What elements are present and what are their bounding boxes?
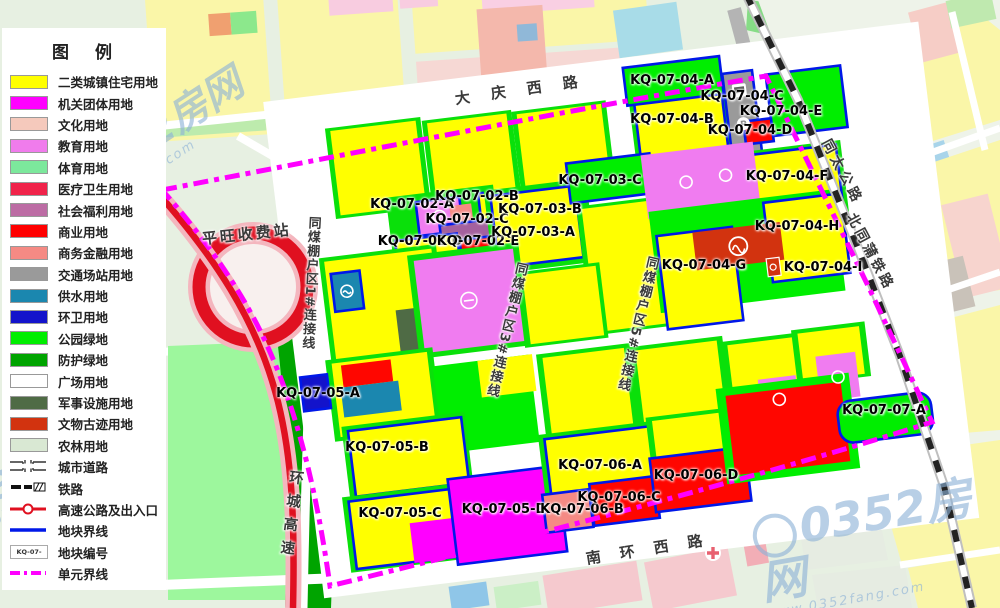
legend-item: 农林用地 [2,435,166,456]
road-icon [10,460,48,474]
legend-title: 图 例 [8,38,166,63]
legend-swatch [10,267,48,281]
legend-label: 体育用地 [58,158,108,177]
railway-icon [10,481,48,495]
legend-label: 医疗卫生用地 [58,179,133,198]
legend-swatch [10,224,48,238]
legend-swatch [10,396,48,410]
legend-swatch [10,246,48,260]
legend-swatch [10,438,48,452]
legend-label: 交通场站用地 [58,265,133,284]
legend-item: 城市道路 [2,456,166,477]
legend-item: 广场用地 [2,370,166,391]
legend-swatch [10,75,48,89]
legend-label: 高速公路及出入口 [58,500,158,519]
legend-label: 农林用地 [58,436,108,455]
legend-label: 供水用地 [58,286,108,305]
legend-label: 社会福利用地 [58,201,133,220]
legend-swatch [10,289,48,303]
legend-item: 医疗卫生用地 [2,178,166,199]
legend-swatch [10,117,48,131]
legend-swatch [10,203,48,217]
parcel-line-icon [10,524,48,538]
legend-item: 文化用地 [2,114,166,135]
legend-item: 铁路 [2,477,166,498]
parcel-KQ-07-03-C [566,153,654,203]
legend-label: 商业用地 [58,222,108,241]
legend-label: 地块界线 [58,521,108,540]
parcel-commercial-big [725,382,850,476]
legend-swatch [10,160,48,174]
legend-label: 单元界线 [58,564,108,583]
legend-label: 广场用地 [58,372,108,391]
unit-line-icon [10,567,48,581]
hospital-icon [705,545,721,561]
legend-swatch [10,353,48,367]
legend-label: 文化用地 [58,115,108,134]
parcel-code-icon: KQ-07-03-A [10,545,48,559]
legend-label: 商务金融用地 [58,243,133,262]
legend-swatch [10,182,48,196]
legend-item: 单元界线 [2,563,166,584]
legend-label: 城市道路 [58,457,108,476]
legend-item: 公园绿地 [2,328,166,349]
legend-items: 二类城镇住宅用地机关团体用地文化用地教育用地体育用地医疗卫生用地社会福利用地商业… [2,71,166,584]
legend-label: 教育用地 [58,136,108,155]
legend-item: 文物古迹用地 [2,413,166,434]
legend-swatch [10,139,48,153]
relic-small-icon [766,257,781,276]
legend-panel: 图 例 二类城镇住宅用地机关团体用地文化用地教育用地体育用地医疗卫生用地社会福利… [2,28,166,590]
legend-item: 防护绿地 [2,349,166,370]
legend-swatch [10,374,48,388]
legend-swatch [10,331,48,345]
legend-label: 地块编号 [58,543,108,562]
parcel-business-small [449,203,473,223]
legend-item: 交通场站用地 [2,264,166,285]
legend-item: 社会福利用地 [2,199,166,220]
parcel-KQ-07-05-A [300,374,331,411]
outside-water-parcel [613,2,683,58]
legend-item: 商务金融用地 [2,242,166,263]
legend-label: 机关团体用地 [58,94,133,113]
legend-label: 环卫用地 [58,307,108,326]
parcel-water-supply [331,271,364,312]
highway-icon [10,503,48,517]
legend-item: 体育用地 [2,157,166,178]
legend-label: 公园绿地 [58,329,108,348]
legend-label: 铁路 [58,479,83,498]
legend-item: 二类城镇住宅用地 [2,71,166,92]
south-road [160,578,340,585]
legend-item: 教育用地 [2,135,166,156]
legend-swatch [10,96,48,110]
legend-item: 地块界线 [2,520,166,541]
legend-label: 二类城镇住宅用地 [58,72,158,91]
legend-item: 高速公路及出入口 [2,499,166,520]
legend-item: 供水用地 [2,285,166,306]
legend-item: 军事设施用地 [2,392,166,413]
legend-item: KQ-07-03-A地块编号 [2,542,166,563]
legend-swatch [10,417,48,431]
legend-label: 文物古迹用地 [58,414,133,433]
legend-label: 防护绿地 [58,350,108,369]
legend-swatch [10,310,48,324]
legend-label: 军事设施用地 [58,393,133,412]
planning-map-page: P KQ-07-02-AKQ-07-02-BKQ-07-02-CKQ-07-02… [0,0,1000,608]
legend-item: 商业用地 [2,221,166,242]
legend-item: 机关团体用地 [2,92,166,113]
legend-item: 环卫用地 [2,306,166,327]
